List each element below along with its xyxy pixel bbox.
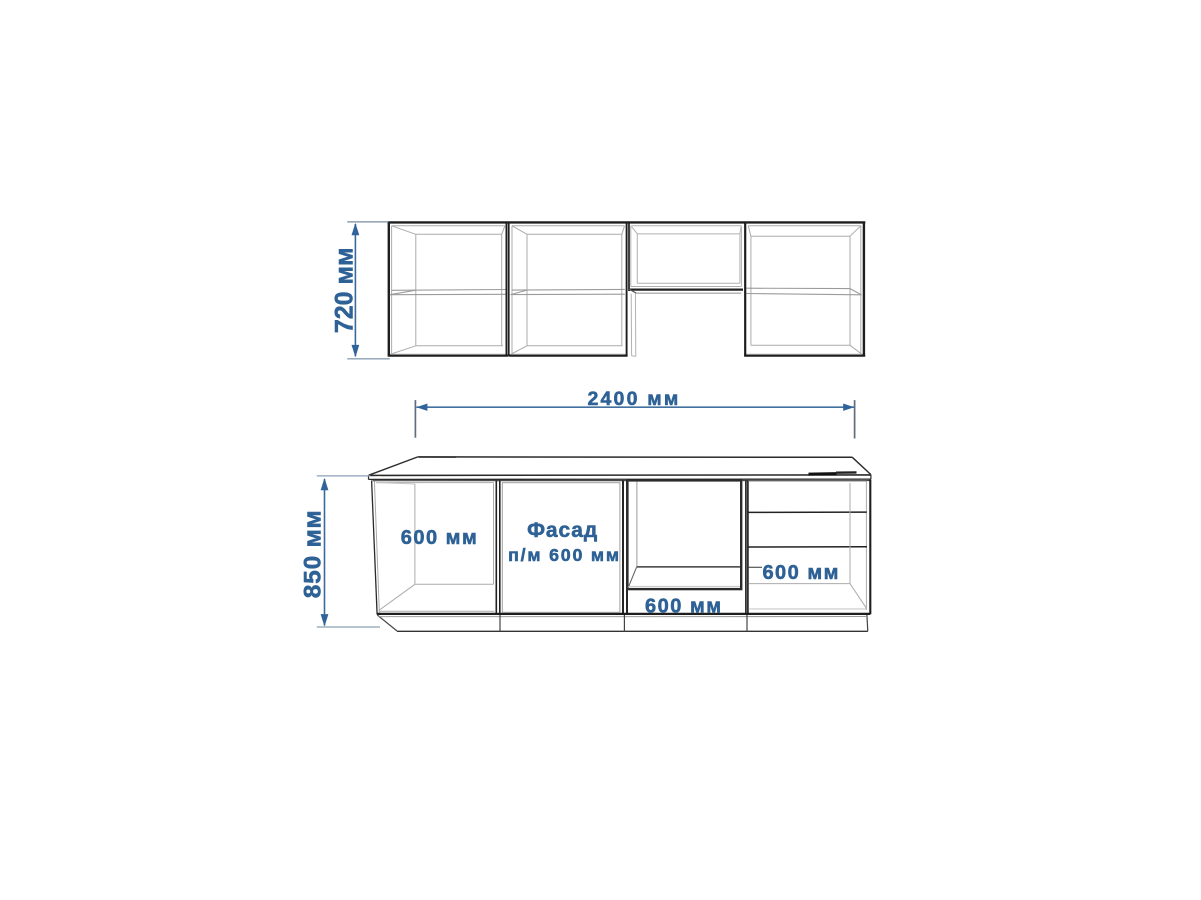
svg-text:2400 мм: 2400 мм	[587, 388, 680, 410]
svg-text:Фасад: Фасад	[527, 519, 598, 542]
svg-text:600 мм: 600 мм	[401, 527, 479, 549]
svg-text:850 мм: 850 мм	[300, 510, 327, 599]
svg-text:600 мм: 600 мм	[645, 596, 723, 618]
svg-text:п/м 600 мм: п/м 600 мм	[508, 545, 621, 565]
svg-text:720 мм: 720 мм	[331, 247, 359, 333]
svg-text:600 мм: 600 мм	[762, 562, 840, 584]
